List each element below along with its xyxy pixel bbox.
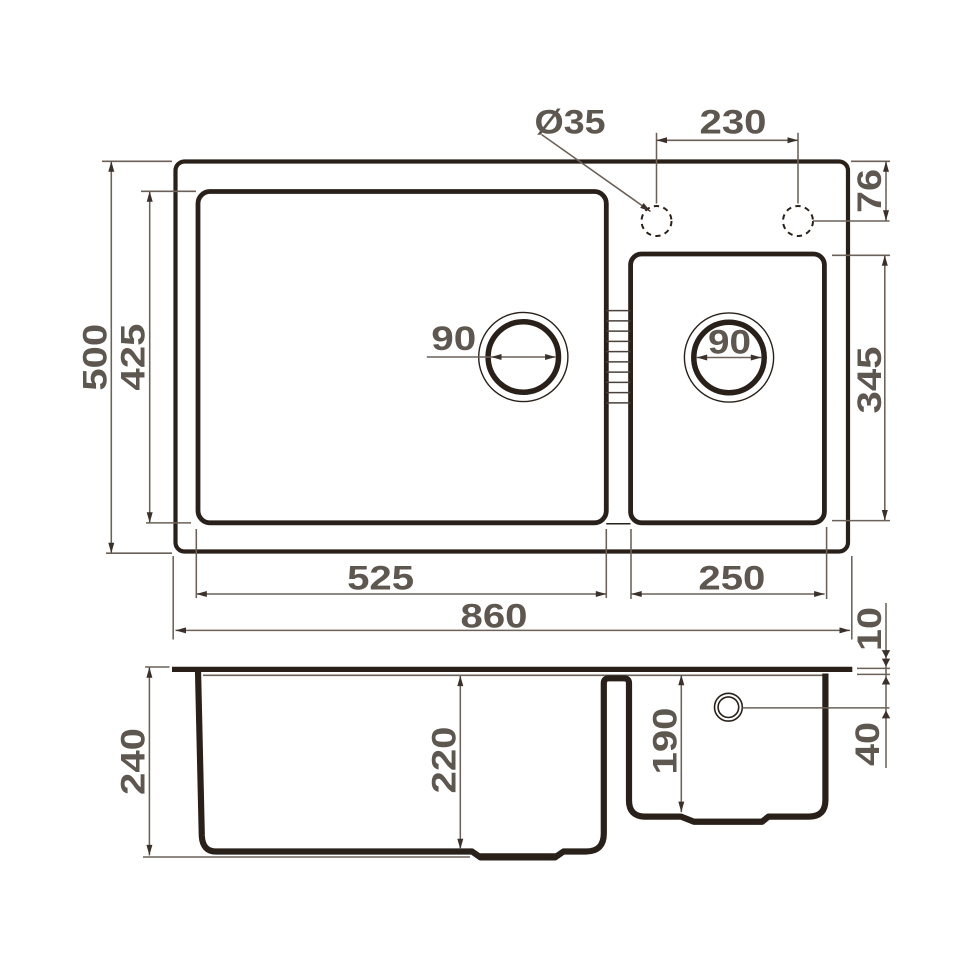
svg-text:10: 10 xyxy=(851,607,889,651)
svg-text:425: 425 xyxy=(115,324,153,391)
svg-text:240: 240 xyxy=(114,728,152,795)
svg-text:525: 525 xyxy=(347,560,414,598)
svg-text:40: 40 xyxy=(849,722,887,766)
svg-text:250: 250 xyxy=(698,560,765,598)
svg-text:220: 220 xyxy=(425,727,463,794)
svg-text:860: 860 xyxy=(461,598,528,636)
svg-text:90: 90 xyxy=(708,324,751,362)
svg-text:190: 190 xyxy=(646,708,684,775)
svg-text:345: 345 xyxy=(851,347,889,414)
svg-text:90: 90 xyxy=(431,320,476,358)
svg-text:Ø35: Ø35 xyxy=(535,104,606,142)
svg-text:76: 76 xyxy=(851,169,889,213)
svg-text:500: 500 xyxy=(76,324,114,391)
svg-text:230: 230 xyxy=(700,104,767,142)
